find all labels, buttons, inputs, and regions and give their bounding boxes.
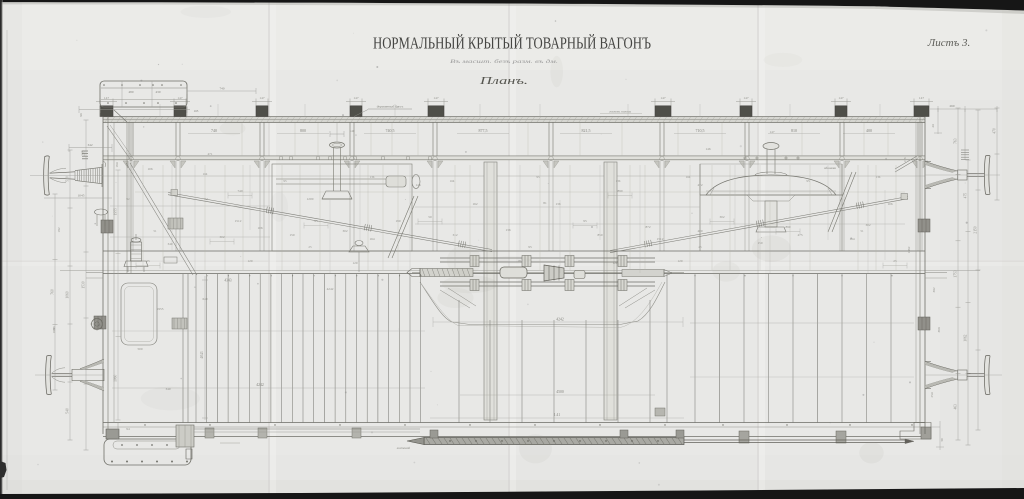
svg-text:106: 106 [257,226,262,230]
svg-text:1200: 1200 [307,197,314,201]
svg-text:850: 850 [597,233,602,237]
svg-text:1753: 1753 [954,270,958,277]
svg-text:302: 302 [932,287,936,292]
svg-text:162: 162 [472,202,477,206]
svg-text:95: 95 [528,245,532,249]
svg-text:136: 136 [616,179,621,183]
svg-text:136: 136 [370,175,375,179]
svg-text:120: 120 [612,261,617,265]
svg-text:146: 146 [705,147,710,151]
svg-text:90: 90 [79,113,83,117]
svg-text:342: 342 [87,143,92,147]
svg-text:120: 120 [352,261,357,265]
svg-text:165: 165 [194,109,199,113]
svg-text:164: 164 [115,162,119,167]
svg-text:140: 140 [349,129,354,133]
svg-text:640: 640 [202,297,207,301]
svg-text:НОРМАЛЬНЫЙ КРЫТЫЙ ТОВАРНЫЙ ВАГ: НОРМАЛЬНЫЙ КРЫТЫЙ ТОВАРНЫЙ ВАГОНЪ [373,34,651,53]
svg-text:147: 147 [353,96,359,100]
svg-text:463: 463 [954,404,958,410]
svg-text:480: 480 [129,90,134,94]
svg-text:890: 890 [617,189,622,193]
svg-text:Листъ 3.: Листъ 3. [927,37,971,49]
svg-text:500: 500 [137,347,142,351]
svg-text:147: 147 [838,96,844,100]
svg-text:4242: 4242 [327,287,334,291]
svg-text:1045: 1045 [78,194,85,198]
svg-text:25: 25 [308,245,312,249]
svg-text:25: 25 [146,259,150,263]
svg-text:150: 150 [289,233,294,237]
svg-text:164: 164 [686,175,691,179]
svg-text:147: 147 [919,96,925,100]
svg-text:4242: 4242 [256,383,264,387]
svg-text:872: 872 [645,225,650,229]
svg-text:106: 106 [887,202,892,206]
svg-text:94: 94 [126,427,130,431]
svg-text:1060: 1060 [114,375,118,382]
svg-text:листовой: листовой [396,445,411,450]
svg-text:50: 50 [428,215,432,219]
svg-text:106: 106 [147,167,152,171]
svg-text:51: 51 [860,229,864,233]
svg-text:95: 95 [806,179,810,183]
svg-text:400: 400 [697,229,702,233]
svg-text:147: 147 [660,96,666,100]
svg-text:4242: 4242 [556,318,564,322]
svg-text:164: 164 [203,172,208,176]
svg-text:810: 810 [791,128,797,133]
svg-text:1530: 1530 [82,281,86,288]
svg-text:95: 95 [536,175,540,179]
svg-text:1062: 1062 [907,246,911,253]
svg-text:182: 182 [57,227,61,232]
svg-text:4343: 4343 [224,279,231,283]
svg-text:обшивка: обшивка [824,166,836,170]
svg-text:147: 147 [259,96,265,100]
svg-text:302: 302 [865,223,870,227]
svg-text:1062: 1062 [964,334,968,341]
svg-text:1060: 1060 [52,326,56,333]
svg-text:147: 147 [433,96,439,100]
svg-text:4043: 4043 [200,351,204,358]
svg-text:4500: 4500 [556,390,564,394]
svg-text:81: 81 [543,201,547,205]
svg-text:95: 95 [314,219,318,223]
svg-text:740: 740 [237,189,242,193]
svg-text:147: 147 [743,96,749,100]
svg-text:302: 302 [342,229,347,233]
svg-text:24: 24 [931,124,935,128]
svg-text:760: 760 [51,289,55,295]
svg-text:147: 147 [769,130,774,134]
svg-text:25: 25 [893,259,897,263]
svg-text:475: 475 [964,193,968,199]
svg-text:400: 400 [866,128,872,133]
svg-text:деревянный брусъ: деревянный брусъ [377,104,404,109]
svg-text:540: 540 [66,408,70,414]
svg-text:2150: 2150 [974,226,978,233]
svg-text:260: 260 [949,104,954,108]
svg-text:1.41: 1.41 [554,413,560,417]
svg-text:1512: 1512 [657,237,664,241]
svg-text:740: 740 [211,128,217,133]
svg-text:302: 302 [719,215,724,219]
svg-text:740: 740 [220,87,225,91]
svg-text:120: 120 [677,259,682,263]
svg-text:120: 120 [247,259,252,263]
svg-text:50: 50 [940,438,944,442]
svg-text:1060: 1060 [66,291,70,298]
svg-text:800: 800 [300,128,306,133]
svg-text:25: 25 [698,245,702,249]
svg-text:136: 136 [876,175,881,179]
svg-text:51: 51 [153,229,157,233]
svg-text:430: 430 [156,90,161,94]
svg-text:Планъ.: Планъ. [479,75,528,87]
svg-text:1955: 1955 [157,307,164,311]
svg-text:471: 471 [207,152,212,156]
svg-text:92: 92 [126,197,130,201]
svg-text:1955: 1955 [114,208,118,215]
svg-text:164: 164 [450,179,455,183]
svg-text:360: 360 [937,327,941,332]
svg-text:470: 470 [993,128,997,134]
svg-text:176: 176 [903,157,907,162]
svg-text:510: 510 [66,176,70,182]
svg-text:164: 164 [849,237,854,241]
svg-text:95: 95 [283,179,287,183]
svg-text:1512: 1512 [235,219,242,223]
svg-text:254: 254 [930,392,934,397]
svg-text:285: 285 [82,150,86,156]
svg-text:95: 95 [583,219,587,223]
svg-text:146: 146 [415,183,420,187]
svg-text:472: 472 [697,183,702,187]
svg-text:Въ масшт. безъ разм. въ дм.: Въ масшт. безъ разм. въ дм. [450,58,558,65]
svg-text:164: 164 [369,237,374,241]
svg-text:136: 136 [505,228,510,232]
svg-text:763: 763 [954,138,958,144]
